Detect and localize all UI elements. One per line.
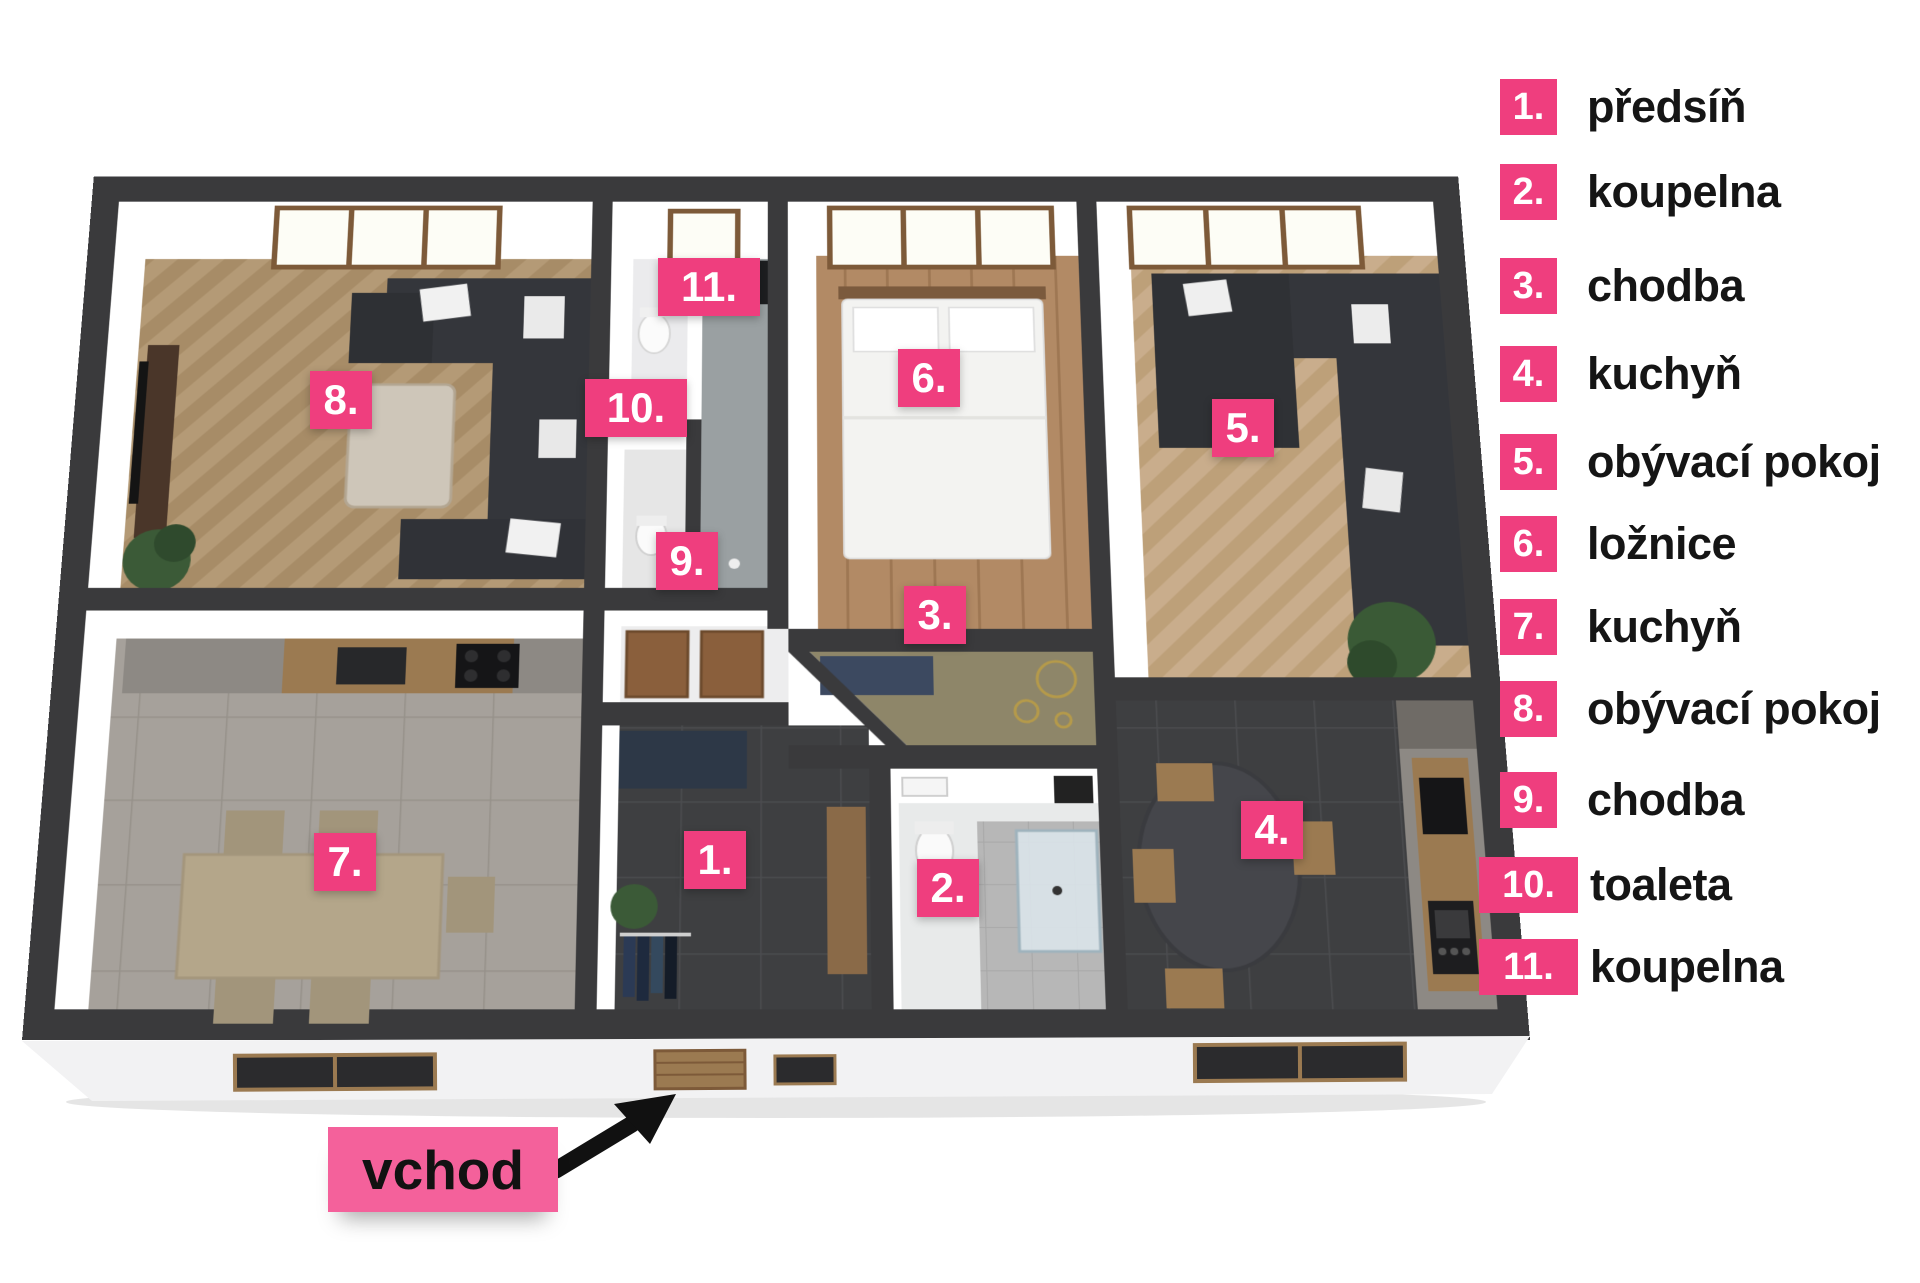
legend-item-9: 9.chodba <box>1500 772 1744 828</box>
legend-item-8: 8.obývací pokoj <box>1500 681 1881 737</box>
legend-item-7: 7.kuchyň <box>1500 599 1742 655</box>
legend-item-1: 1.předsíň <box>1500 79 1746 135</box>
legend-item-10: 10.toaleta <box>1479 857 1732 913</box>
legend-item-3: 3.chodba <box>1500 258 1744 314</box>
legend-item-5: 5.obývací pokoj <box>1500 434 1881 490</box>
legend-label-5: obývací pokoj <box>1587 436 1881 488</box>
legend-item-2: 2.koupelna <box>1500 164 1781 220</box>
legend-badge-3: 3. <box>1500 258 1557 314</box>
legend-label-2: koupelna <box>1587 166 1781 218</box>
legend-badge-5: 5. <box>1500 434 1557 490</box>
legend-badge-8: 8. <box>1500 681 1557 737</box>
legend-item-6: 6.ložnice <box>1500 516 1736 572</box>
legend-label-6: ložnice <box>1587 518 1736 570</box>
legend-item-4: 4.kuchyň <box>1500 346 1742 402</box>
legend-item-11: 11.koupelna <box>1479 939 1784 995</box>
entrance-label: vchod <box>328 1127 558 1212</box>
legend-badge-4: 4. <box>1500 346 1557 402</box>
legend-badge-9: 9. <box>1500 772 1557 828</box>
legend-label-4: kuchyň <box>1587 348 1742 400</box>
legend-label-7: kuchyň <box>1587 601 1742 653</box>
legend-label-10: toaleta <box>1590 859 1732 911</box>
legend-badge-7: 7. <box>1500 599 1557 655</box>
legend-badge-10: 10. <box>1479 857 1578 913</box>
legend-badge-6: 6. <box>1500 516 1557 572</box>
legend-label-1: předsíň <box>1587 81 1746 133</box>
legend-badge-11: 11. <box>1479 939 1578 995</box>
legend-badge-1: 1. <box>1500 79 1557 135</box>
legend-label-9: chodba <box>1587 774 1744 826</box>
legend-label-8: obývací pokoj <box>1587 683 1881 735</box>
legend-label-11: koupelna <box>1590 941 1784 993</box>
legend-label-3: chodba <box>1587 260 1744 312</box>
floor-plan-infographic: 1. 2. 3. 4. 5. 6. 7. 8. 9. 10. 11. 1.pře… <box>0 0 1920 1283</box>
legend-badge-2: 2. <box>1500 164 1557 220</box>
legend: 1.předsíň 2.koupelna 3.chodba 4.kuchyň 5… <box>0 0 1920 1283</box>
